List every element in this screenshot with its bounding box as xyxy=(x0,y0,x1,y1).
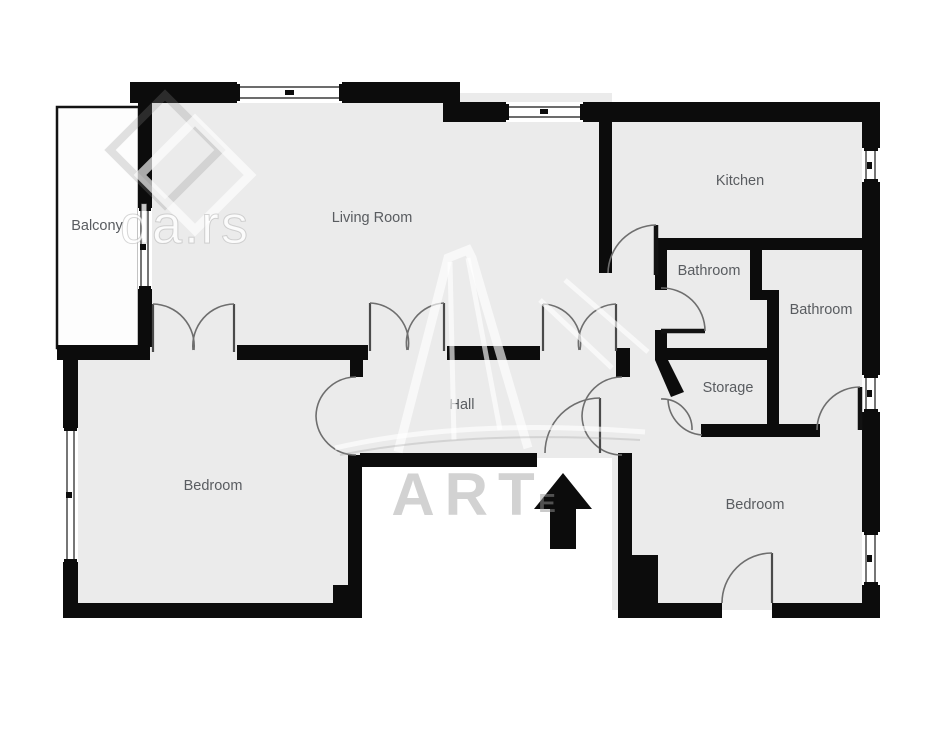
wall-segment xyxy=(862,122,880,150)
wall-segment xyxy=(655,238,862,250)
wall-segment xyxy=(701,424,820,437)
wall-segment xyxy=(750,250,762,295)
bathrooms-storage-area xyxy=(612,238,878,455)
window-symbol-bedroom-left xyxy=(63,428,78,562)
room-label-storage: Storage xyxy=(703,380,754,396)
room-label-bathroom-2: Bathroom xyxy=(790,302,853,318)
room-label-balcony: Balcony xyxy=(71,218,123,234)
wall-segment xyxy=(862,250,880,377)
wall-segment xyxy=(138,287,152,347)
wall-segment xyxy=(599,102,612,273)
wall-segment xyxy=(63,345,78,430)
wall-segment xyxy=(616,348,630,377)
window-symbol-kitchen-right xyxy=(862,148,880,182)
wall-segment xyxy=(443,82,460,122)
wall-segment xyxy=(862,424,880,437)
wall-segment xyxy=(447,346,540,360)
wall-segment xyxy=(618,453,632,568)
window-symbol-living-top-right xyxy=(506,102,583,122)
wall-segment xyxy=(350,346,363,377)
watermark-text-tertiary: E xyxy=(538,488,555,518)
room-label-bedroom-left: Bedroom xyxy=(184,478,243,494)
room-label-kitchen: Kitchen xyxy=(716,173,764,189)
watermark-text-secondary: ART xyxy=(391,461,544,528)
wall-segment xyxy=(63,603,347,618)
room-label-living-room: Living Room xyxy=(332,210,413,226)
wall-segment xyxy=(655,348,779,360)
window-symbol-bathroom-right xyxy=(862,375,880,412)
wall-segment xyxy=(772,603,865,618)
floor-plan-canvas: Balcony Living Room Kitchen Bathroom Bat… xyxy=(0,0,926,750)
wall-segment xyxy=(237,345,368,360)
wall-segment xyxy=(348,455,362,603)
wall-segment xyxy=(862,180,880,250)
wall-segment xyxy=(460,102,507,122)
room-label-bedroom-right: Bedroom xyxy=(726,497,785,513)
wall-segment xyxy=(618,603,722,618)
wall-segment xyxy=(583,102,880,122)
wall-segment xyxy=(767,295,779,428)
wall-segment xyxy=(342,82,460,103)
floor-plan-page: Balcony Living Room Kitchen Bathroom Bat… xyxy=(0,0,926,750)
window-symbol-bedroom-right xyxy=(862,532,880,585)
watermark-text-primary: da.rs xyxy=(120,195,250,255)
wall-segment xyxy=(618,555,658,605)
room-label-bathroom-1: Bathroom xyxy=(678,263,741,279)
window-symbol-living-top xyxy=(237,82,342,103)
